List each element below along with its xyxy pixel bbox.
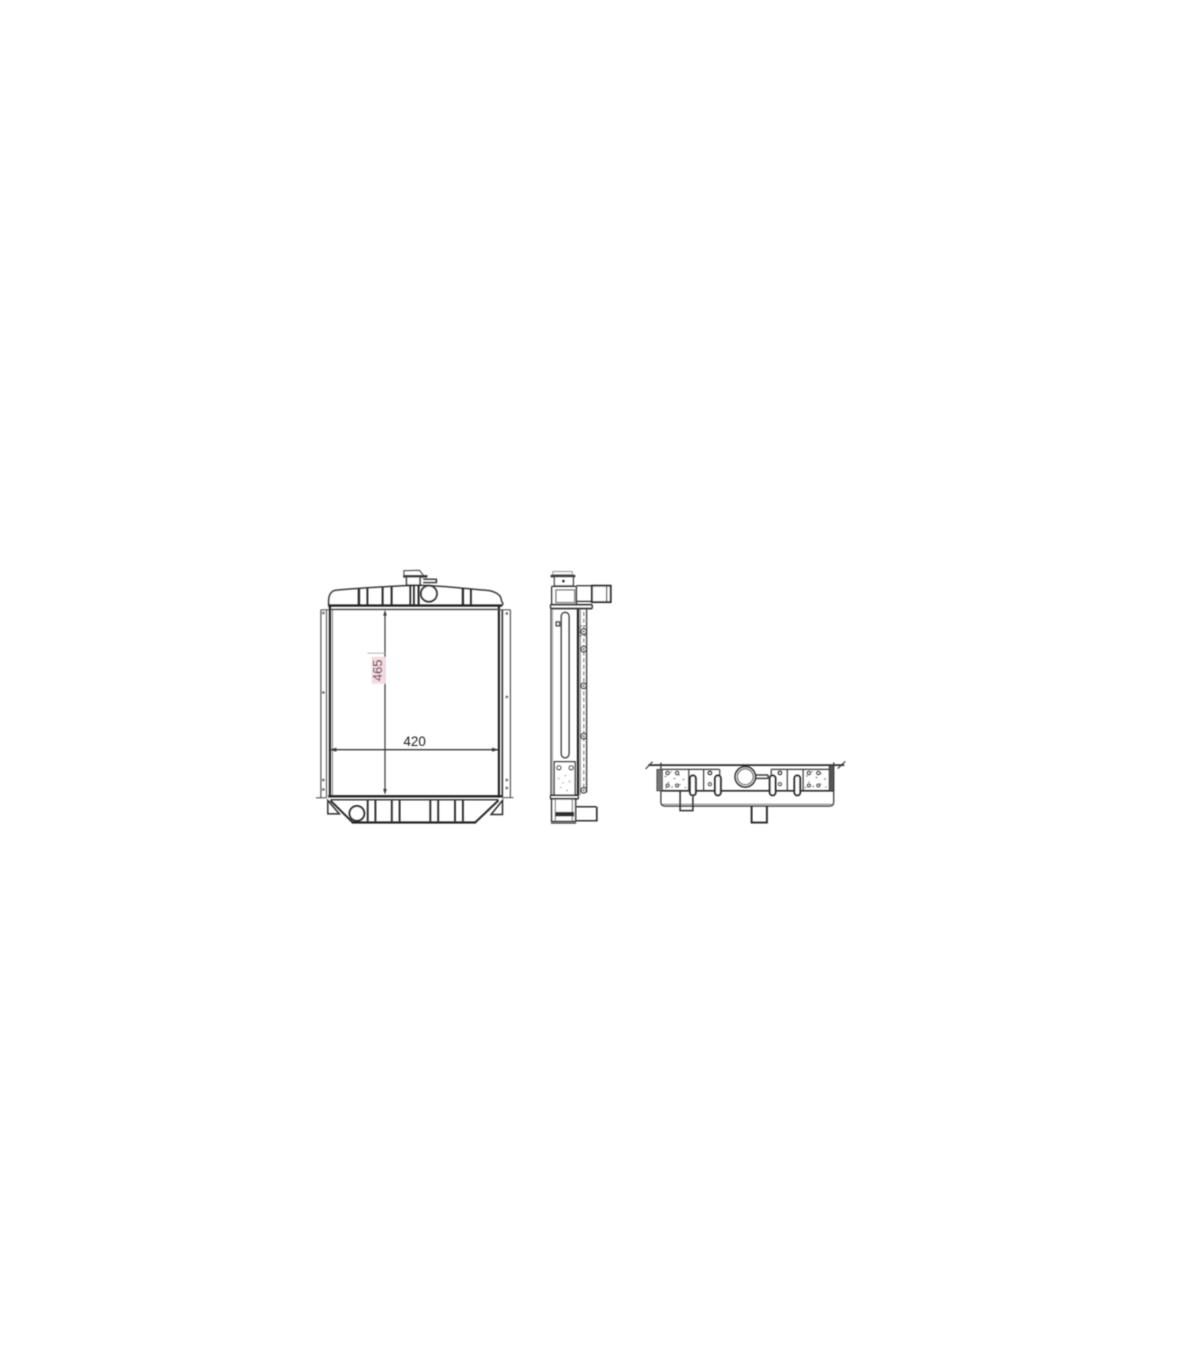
svg-text:420: 420 <box>403 734 425 749</box>
svg-text:465: 465 <box>370 660 385 681</box>
